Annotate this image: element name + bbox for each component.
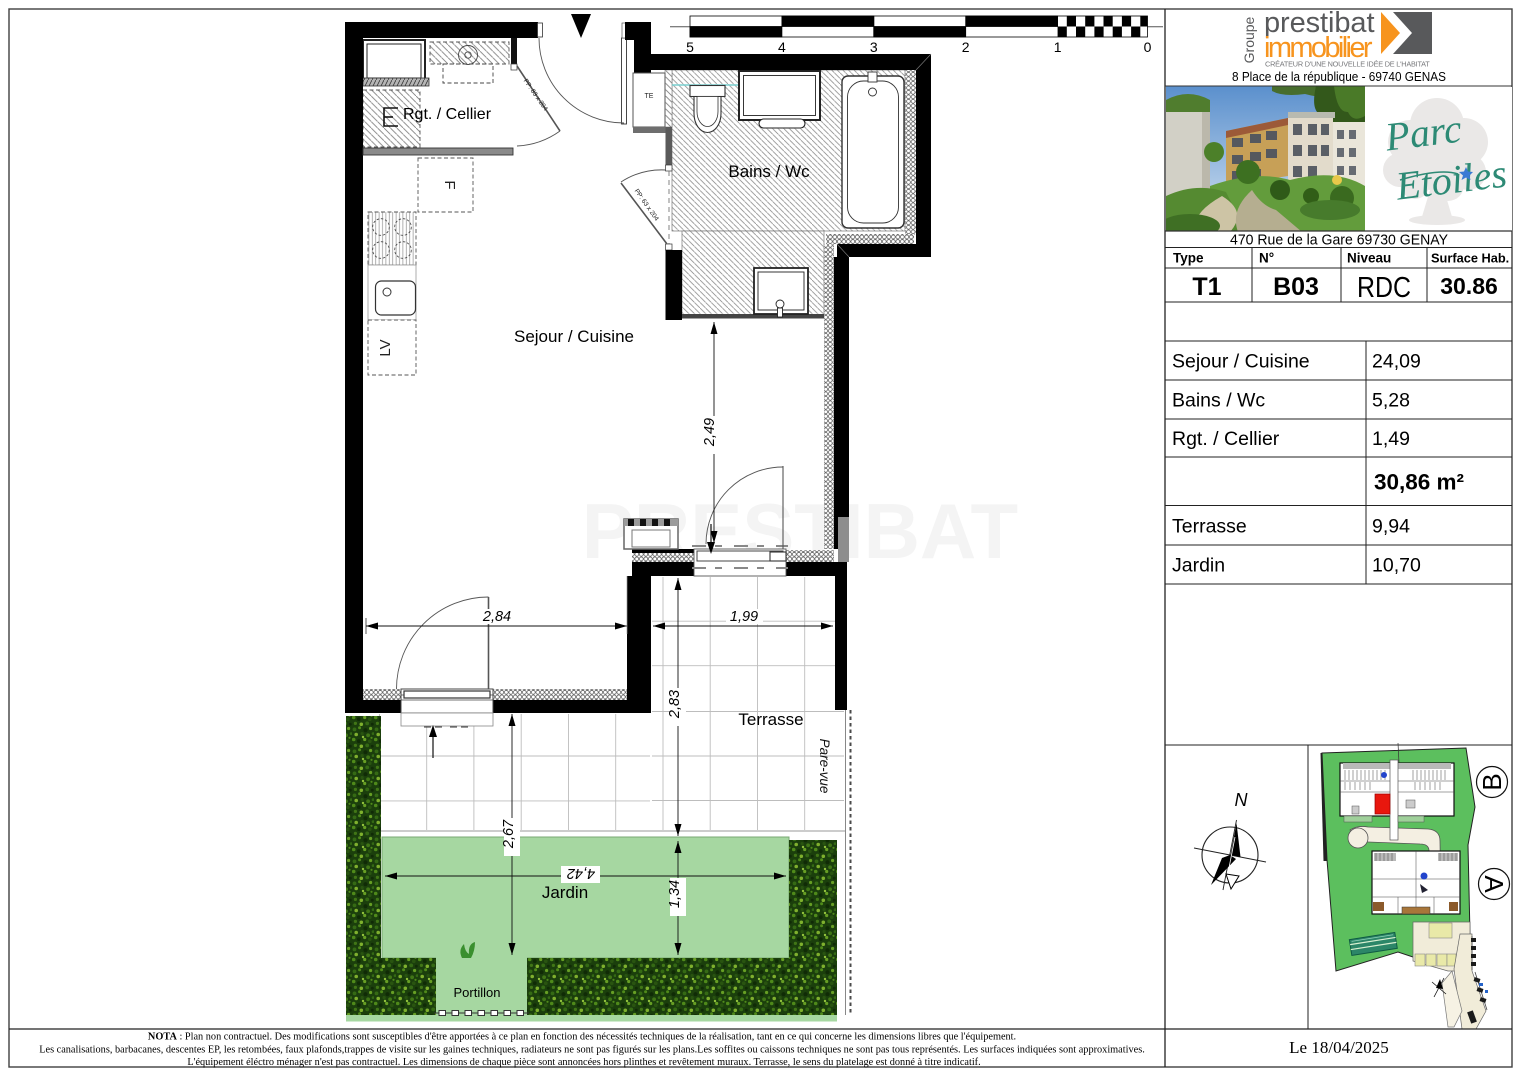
svg-text:Jardin: Jardin: [542, 883, 588, 902]
svg-text:A: A: [1479, 875, 1509, 893]
svg-text:N°: N°: [1259, 251, 1274, 266]
svg-text:Pare-vue: Pare-vue: [817, 739, 832, 794]
svg-text:TE: TE: [645, 93, 654, 100]
svg-text:F: F: [441, 180, 458, 189]
svg-text:Terrasse: Terrasse: [1172, 516, 1247, 538]
svg-text:LV: LV: [377, 339, 394, 356]
svg-text:Les canalisations, barbacanes,: Les canalisations, barbacanes, descentes…: [39, 1045, 1145, 1056]
svg-text:RDC: RDC: [1357, 272, 1411, 304]
svg-text:1: 1: [1054, 39, 1062, 55]
svg-text:Jardin: Jardin: [1172, 555, 1225, 577]
svg-text:Sejour / Cuisine: Sejour / Cuisine: [514, 327, 634, 346]
svg-text:Portillon: Portillon: [454, 985, 501, 1000]
svg-text:5,28: 5,28: [1372, 390, 1410, 412]
svg-text:4,42: 4,42: [567, 865, 595, 881]
svg-text:24,09: 24,09: [1372, 351, 1421, 373]
svg-text:B: B: [1477, 773, 1507, 790]
svg-text:Terrasse: Terrasse: [738, 710, 803, 729]
svg-text:Groupe: Groupe: [1241, 16, 1257, 63]
svg-text:1,99: 1,99: [730, 609, 758, 625]
svg-text:2,67: 2,67: [501, 819, 517, 849]
svg-text:Niveau: Niveau: [1347, 251, 1391, 266]
svg-text:0: 0: [1144, 39, 1152, 55]
svg-text:30,86 m²: 30,86 m²: [1374, 470, 1465, 495]
svg-text:8 Place de la république - 697: 8 Place de la république - 69740 GENAS: [1232, 69, 1446, 84]
svg-text:470 Rue de la Gare 69730 GENAY: 470 Rue de la Gare 69730 GENAY: [1230, 232, 1448, 249]
svg-text:10,70: 10,70: [1372, 555, 1421, 577]
svg-text:Surface Hab.: Surface Hab.: [1431, 251, 1509, 266]
svg-text:Sejour / Cuisine: Sejour / Cuisine: [1172, 351, 1310, 373]
svg-text:5: 5: [686, 39, 694, 55]
svg-text:1,34: 1,34: [667, 880, 683, 908]
svg-text:Le 18/04/2025: Le 18/04/2025: [1289, 1038, 1389, 1057]
svg-text:L'équipement éléctro ménager: L'équipement éléctro ménager n'est pas c…: [187, 1057, 980, 1068]
svg-text:Parc: Parc: [1382, 106, 1464, 160]
svg-text:2,49: 2,49: [702, 418, 718, 447]
svg-text:Type: Type: [1173, 251, 1204, 266]
svg-text:4: 4: [778, 39, 786, 55]
svg-text:Bains / Wc: Bains / Wc: [728, 162, 810, 181]
svg-text:T1: T1: [1192, 273, 1221, 301]
svg-text:Rgt. / Cellier: Rgt. / Cellier: [403, 106, 492, 123]
svg-text:30.86: 30.86: [1440, 273, 1498, 299]
svg-text:CRÉATEUR D'UNE NOUVELLE IDÉE D: CRÉATEUR D'UNE NOUVELLE IDÉE DE L'HABITA…: [1265, 60, 1430, 69]
svg-text:Bains / Wc: Bains / Wc: [1172, 390, 1265, 412]
svg-text:NOTA : Plan non contractuel: NOTA : Plan non contractuel. Des modific…: [148, 1032, 1016, 1043]
svg-text:2,84: 2,84: [482, 609, 511, 625]
svg-text:9,94: 9,94: [1372, 516, 1410, 538]
svg-text:3: 3: [870, 39, 878, 55]
svg-text:N: N: [1235, 790, 1249, 810]
svg-text:B03: B03: [1273, 273, 1319, 301]
svg-text:2,83: 2,83: [667, 690, 683, 719]
svg-text:Rgt. / Cellier: Rgt. / Cellier: [1172, 428, 1280, 450]
svg-text:2: 2: [962, 39, 970, 55]
svg-text:1,49: 1,49: [1372, 428, 1410, 450]
